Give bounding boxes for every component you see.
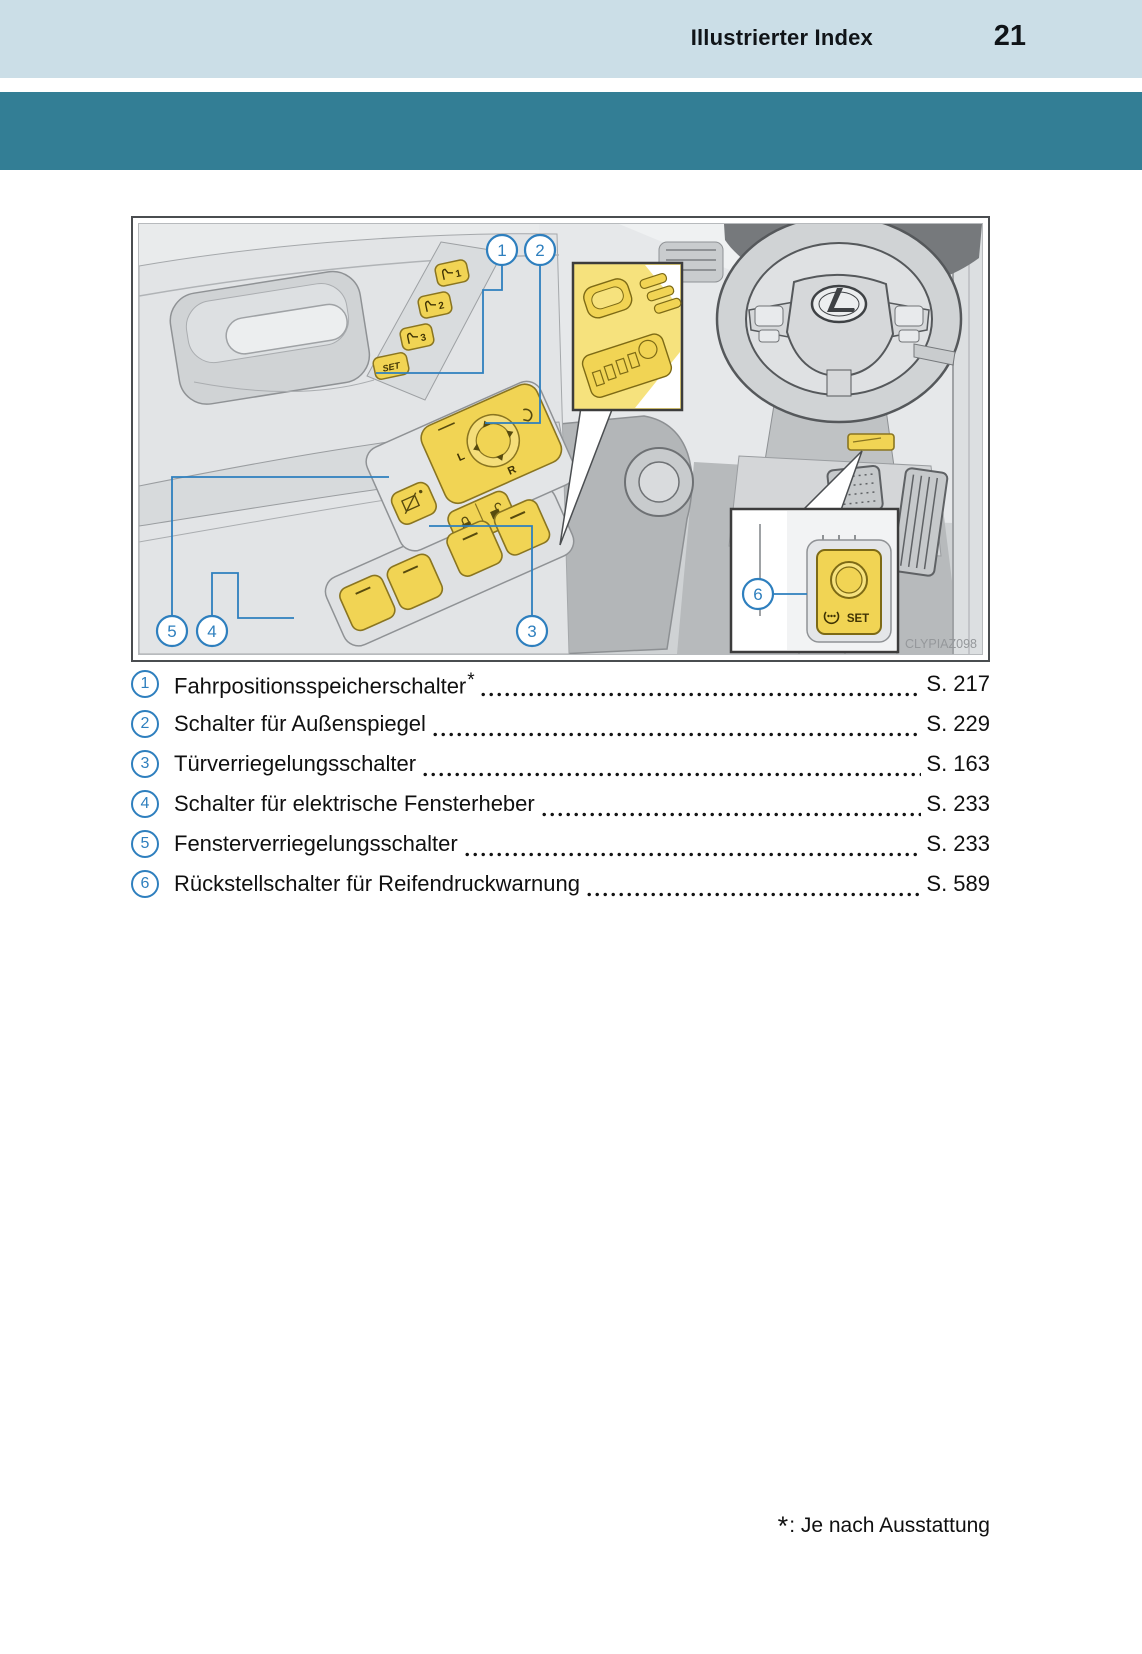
list-item: 3 Türverriegelungsschalter S. 163 <box>131 744 990 784</box>
dot-leader <box>481 692 922 697</box>
footnote-text: : Je nach Ausstattung <box>789 1514 990 1537</box>
item-label: Schalter für elektrische Fensterheber <box>174 791 535 817</box>
item-page-ref: S. 217 <box>926 671 990 697</box>
svg-text:6: 6 <box>753 585 762 604</box>
item-number-badge: 4 <box>131 790 159 818</box>
item-label: Fensterverriegelungsschalter <box>174 831 458 857</box>
item-label: Fahrpositionsspeicherschalter* <box>174 669 474 699</box>
svg-text:5: 5 <box>167 622 176 641</box>
callout-2: 2 <box>525 235 555 265</box>
svg-text:4: 4 <box>207 622 216 641</box>
section-color-band <box>0 92 1142 170</box>
item-page-ref: S. 233 <box>926 831 990 857</box>
item-number-badge: 2 <box>131 710 159 738</box>
callout-1: 1 <box>487 235 517 265</box>
item-number-badge: 3 <box>131 750 159 778</box>
tpms-set-button: SET <box>817 550 881 634</box>
svg-text:1: 1 <box>497 241 506 260</box>
item-number-badge: 5 <box>131 830 159 858</box>
callout-4: 4 <box>197 616 227 646</box>
footnote-asterisk: * <box>778 1511 789 1541</box>
list-item: 5 Fensterverriegelungsschalter S. 233 <box>131 824 990 864</box>
dot-leader <box>587 892 921 897</box>
callout-3: 3 <box>517 616 547 646</box>
item-page-ref: S. 229 <box>926 711 990 737</box>
interior-illustration: 1 2 3 SET <box>139 224 982 654</box>
footnote-marker: * <box>467 670 474 691</box>
item-page-ref: S. 163 <box>926 751 990 777</box>
dot-leader <box>433 732 921 737</box>
door-switch-inset <box>573 263 682 410</box>
dot-leader <box>423 772 921 777</box>
item-number-badge: 1 <box>131 670 159 698</box>
callout-6: 6 <box>743 579 773 609</box>
illustrated-index-list: 1 Fahrpositionsspeicherschalter* S. 217 … <box>131 664 990 904</box>
figure-watermark: CLYPIAZ098 <box>905 637 977 651</box>
item-number-badge: 6 <box>131 870 159 898</box>
equipment-footnote: *: Je nach Ausstattung <box>778 1508 990 1539</box>
callout-5: 5 <box>157 616 187 646</box>
page-title: Illustrierter Index <box>691 25 873 51</box>
list-item: 4 Schalter für elektrische Fensterheber … <box>131 784 990 824</box>
list-item: 6 Rückstellschalter für Reifendruckwarnu… <box>131 864 990 904</box>
item-label: Türverriegelungsschalter <box>174 751 416 777</box>
dot-leader <box>465 852 922 857</box>
page-number: 21 <box>994 20 1026 53</box>
item-label: Schalter für Außenspiegel <box>174 711 426 737</box>
svg-text:3: 3 <box>527 622 536 641</box>
brand-emblem <box>812 286 866 322</box>
item-page-ref: S. 233 <box>926 791 990 817</box>
svg-text:2: 2 <box>535 241 544 260</box>
svg-text:SET: SET <box>847 613 869 625</box>
item-label: Rückstellschalter für Reifendruckwarnung <box>174 871 580 897</box>
item-page-ref: S. 589 <box>926 871 990 897</box>
list-item: 1 Fahrpositionsspeicherschalter* S. 217 <box>131 664 990 704</box>
interior-illustration-frame: 1 2 3 SET <box>131 216 990 662</box>
header-band: Illustrierter Index 21 <box>0 0 1142 78</box>
dot-leader <box>542 812 922 817</box>
list-item: 2 Schalter für Außenspiegel S. 229 <box>131 704 990 744</box>
